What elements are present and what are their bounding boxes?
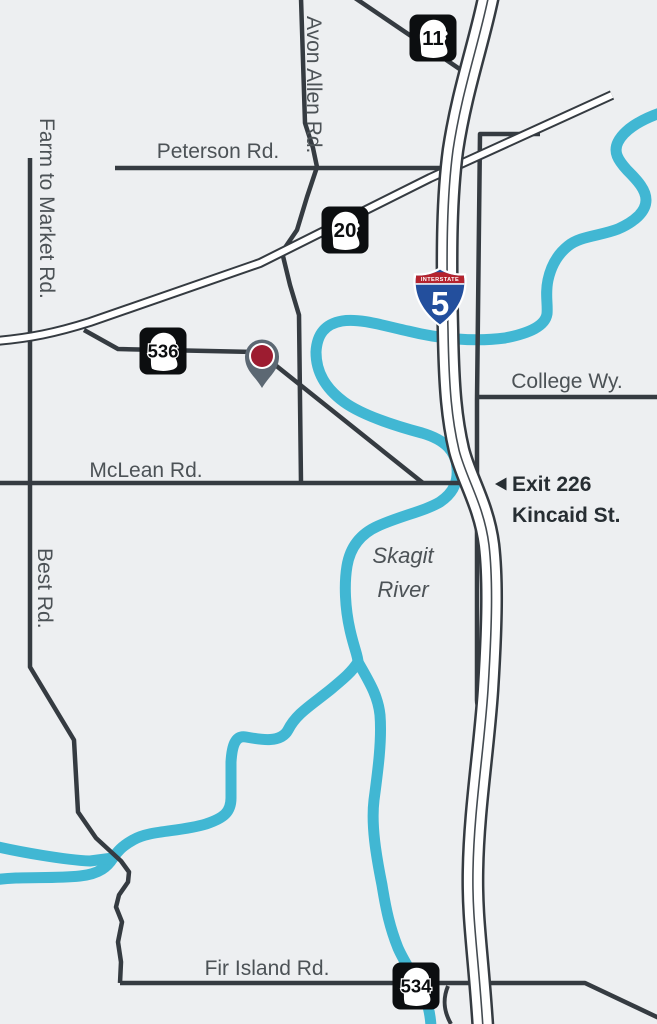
route-shield-sr536: 536 bbox=[140, 328, 187, 375]
fir-island-road-label: Fir Island Rd. bbox=[205, 957, 330, 980]
skagit-river-label-line2: River bbox=[377, 577, 430, 602]
college-way-label: College Wy. bbox=[511, 370, 622, 393]
farm-to-market-road-label: Farm to Market Rd. bbox=[35, 118, 58, 299]
exit-callout-line1: Exit 226 bbox=[512, 473, 591, 496]
location-pin-dot bbox=[251, 345, 273, 367]
shield-number: 536 bbox=[148, 341, 179, 362]
route-shield-sr534: 534 bbox=[393, 963, 440, 1010]
shield-number: 20 bbox=[334, 219, 357, 242]
shield-number: 11 bbox=[422, 27, 444, 50]
shield-number: 534 bbox=[401, 976, 433, 997]
route-shield-sr20: 20 bbox=[322, 207, 369, 254]
route-shield-sr11: 11 bbox=[410, 15, 457, 62]
skagit-area-map: Peterson Rd. Avon Allen Rd. Farm to Mark… bbox=[0, 0, 657, 1024]
best-road-label: Best Rd. bbox=[33, 548, 56, 629]
i5-number-text: 5 bbox=[431, 285, 449, 322]
i5-banner-text: INTERSTATE bbox=[421, 277, 459, 283]
skagit-river-label-line1: Skagit bbox=[372, 543, 434, 568]
exit-callout-line2: Kincaid St. bbox=[512, 504, 621, 527]
mclean-road-label: McLean Rd. bbox=[89, 459, 202, 482]
avon-allen-road-label: Avon Allen Rd. bbox=[302, 16, 325, 153]
peterson-road-label: Peterson Rd. bbox=[157, 140, 280, 163]
